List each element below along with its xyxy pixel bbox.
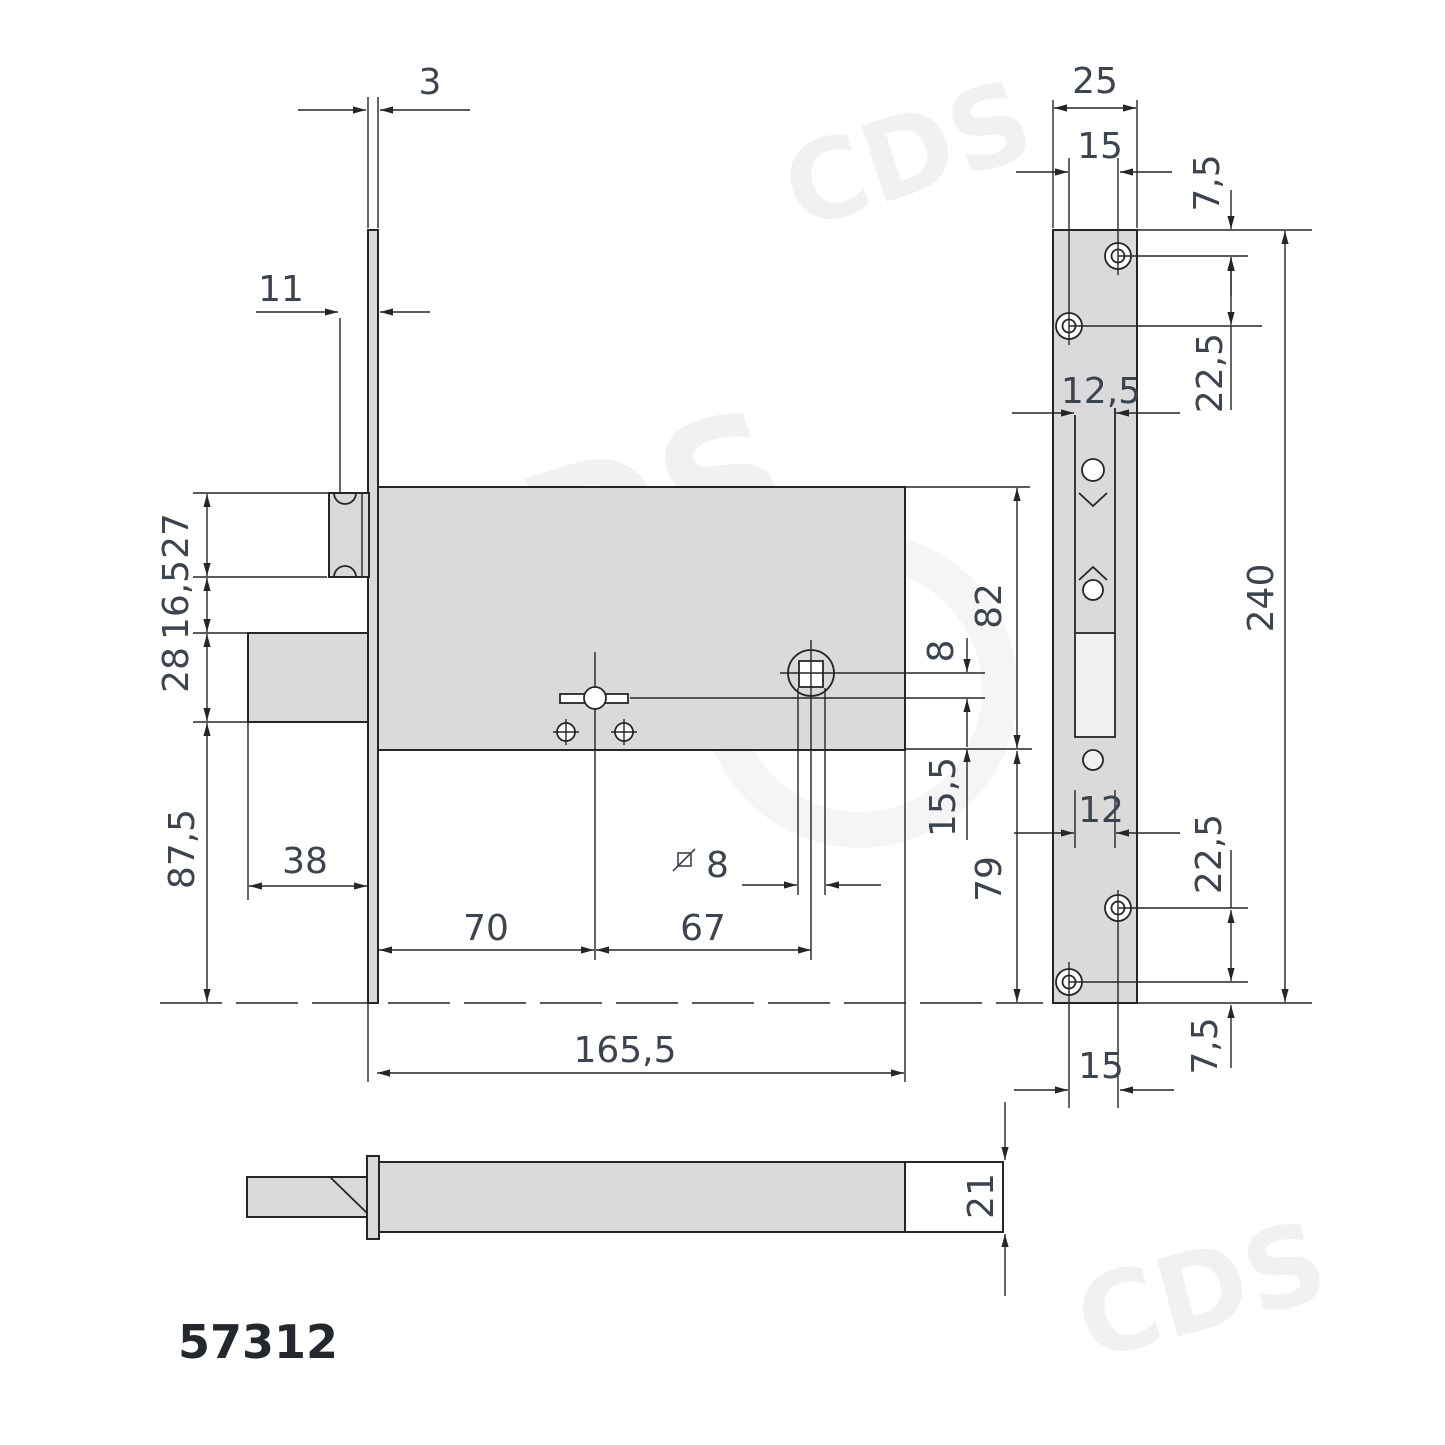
dim-screw-gap-top: 22,5 — [1190, 333, 1231, 413]
dim-spindle-key-gap: 8 — [921, 640, 962, 663]
dim-spindle-square: 8 — [706, 845, 729, 886]
dim-bolt-height: 28 — [156, 647, 197, 693]
key-cylinder-hole — [584, 687, 606, 709]
dim-body-to-plate-end: 79 — [969, 856, 1010, 902]
deadbolt — [248, 633, 368, 722]
keyway-hole — [1083, 580, 1103, 600]
body-bottom-gray — [378, 1162, 905, 1232]
watermark-text: CDS — [1064, 1196, 1340, 1385]
dim-bolt-throw: 38 — [282, 841, 328, 882]
part-number: 57312 — [178, 1315, 338, 1369]
dim-latch-offset: 11 — [258, 269, 304, 310]
dim-keyway-width: 12,5 — [1061, 371, 1141, 412]
dim-key-backset: 70 — [463, 908, 509, 949]
watermark-text: CDS — [768, 55, 1047, 254]
dim-body-length: 165,5 — [573, 1030, 676, 1071]
dim-screw-gap-bottom: 22,5 — [1189, 814, 1230, 894]
faceplate-front — [1053, 230, 1137, 1003]
lock-body — [378, 487, 905, 750]
side-view — [160, 97, 1043, 1082]
keyway-hole — [1082, 459, 1104, 481]
dim-screw-spacing-top: 15 — [1077, 126, 1123, 167]
dim-latch-bolt-gap: 16,5 — [156, 560, 197, 640]
dim-plate-width: 25 — [1072, 61, 1118, 102]
technical-drawing-page: CDS CDS CDS — [0, 0, 1445, 1445]
dim-screw-edge-offset-top: 7,5 — [1187, 154, 1228, 211]
bottom-view: 21 — [247, 1102, 1005, 1296]
dim-screw-spacing-bottom: 15 — [1078, 1046, 1124, 1087]
dim-bolt-to-plate-end: 87,5 — [162, 809, 203, 889]
dim-plate-height: 240 — [1241, 564, 1282, 633]
latch-bottom-view — [247, 1177, 367, 1217]
square-section-symbol — [673, 849, 695, 871]
dim-body-height: 82 — [969, 583, 1010, 629]
bolt-slot — [1075, 633, 1115, 737]
dim-latch-height: 27 — [156, 513, 197, 559]
dim-faceplate-thickness: 3 — [419, 62, 442, 103]
round-hole — [1083, 750, 1103, 770]
lock-technical-drawing: CDS CDS CDS — [0, 0, 1445, 1445]
faceplate-side-profile — [368, 230, 378, 1003]
dim-key-to-spindle: 67 — [680, 908, 726, 949]
faceplate-bottom-section — [367, 1156, 379, 1239]
dim-body-thickness: 21 — [961, 1173, 1002, 1219]
dim-bolt-slot-width: 12 — [1078, 790, 1124, 831]
dim-screw-edge-offset-bottom: 7,5 — [1185, 1017, 1226, 1074]
latch-bolt — [329, 493, 369, 577]
dim-key-to-body-edge: 15,5 — [923, 757, 964, 837]
